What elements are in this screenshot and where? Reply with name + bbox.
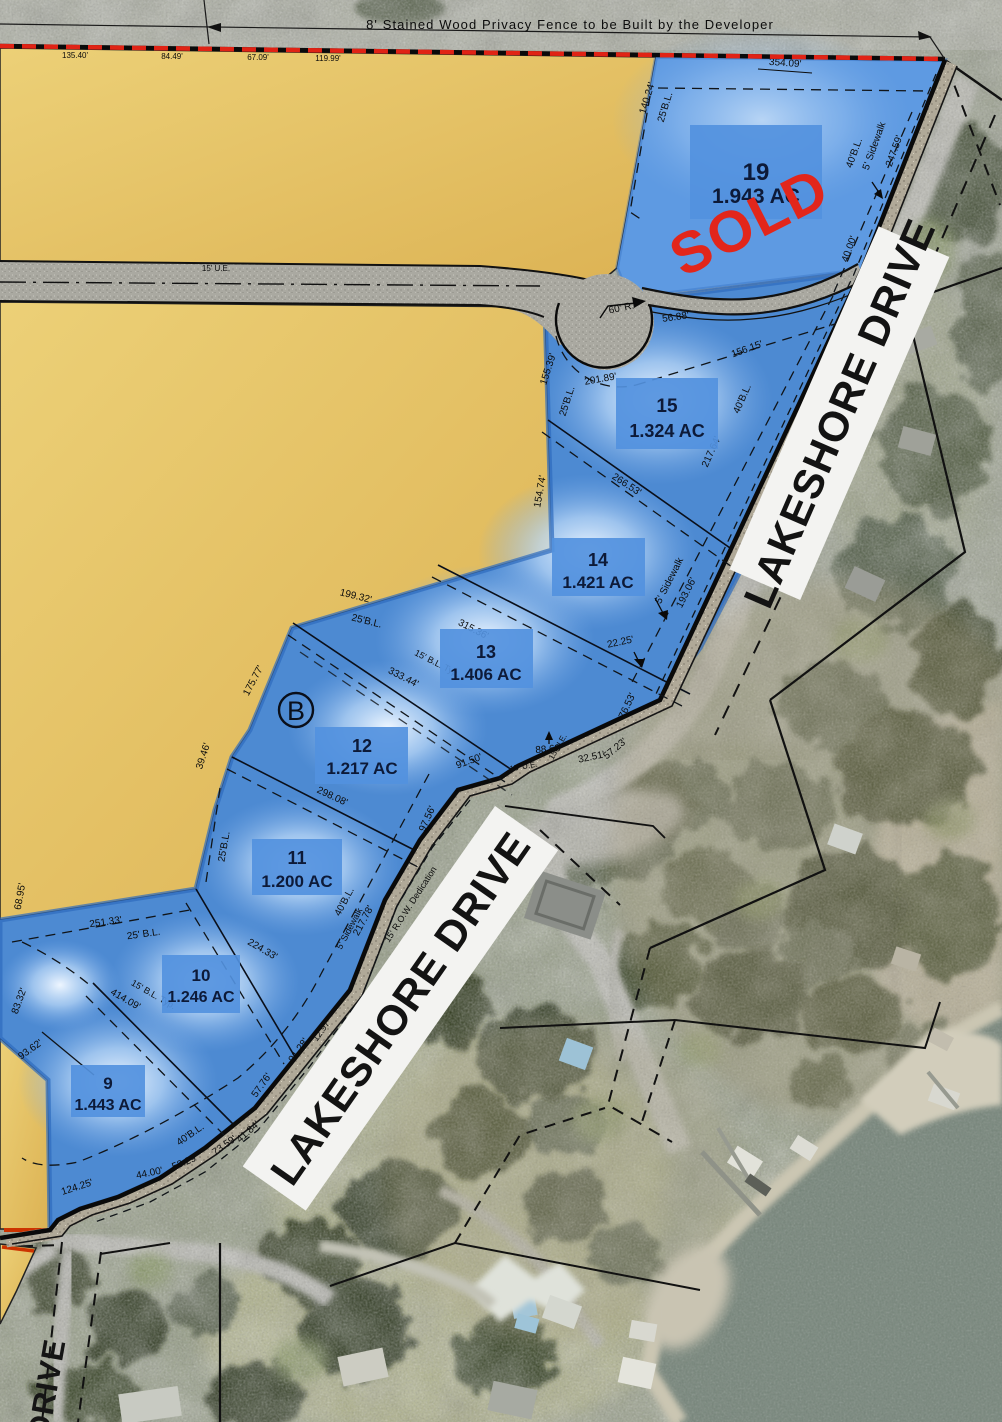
svg-text:12: 12	[352, 736, 372, 756]
svg-text:15: 15	[656, 396, 678, 417]
svg-text:13: 13	[476, 642, 496, 662]
svg-text:1.246 AC: 1.246 AC	[168, 989, 235, 1006]
svg-text:8' Stained Wood Privacy Fence: 8' Stained Wood Privacy Fence to be Buil…	[366, 17, 774, 32]
svg-text:14: 14	[588, 550, 608, 570]
svg-text:9: 9	[103, 1074, 112, 1093]
svg-text:1.443 AC: 1.443 AC	[75, 1097, 142, 1114]
svg-text:1.200 AC: 1.200 AC	[261, 872, 332, 891]
svg-text:10: 10	[192, 966, 211, 985]
svg-text:119.99': 119.99'	[315, 54, 341, 63]
svg-text:B: B	[287, 696, 305, 726]
svg-text:1.421 AC: 1.421 AC	[562, 573, 633, 592]
svg-text:135.40': 135.40'	[62, 51, 88, 60]
svg-text:11: 11	[287, 848, 306, 868]
svg-text:67.09': 67.09'	[247, 53, 269, 62]
svg-text:1.324 AC: 1.324 AC	[629, 421, 704, 441]
svg-text:1.217 AC: 1.217 AC	[326, 759, 397, 778]
svg-text:1.406 AC: 1.406 AC	[450, 665, 521, 684]
svg-text:15' U.E.: 15' U.E.	[202, 264, 230, 273]
svg-text:84.49': 84.49'	[161, 52, 183, 61]
